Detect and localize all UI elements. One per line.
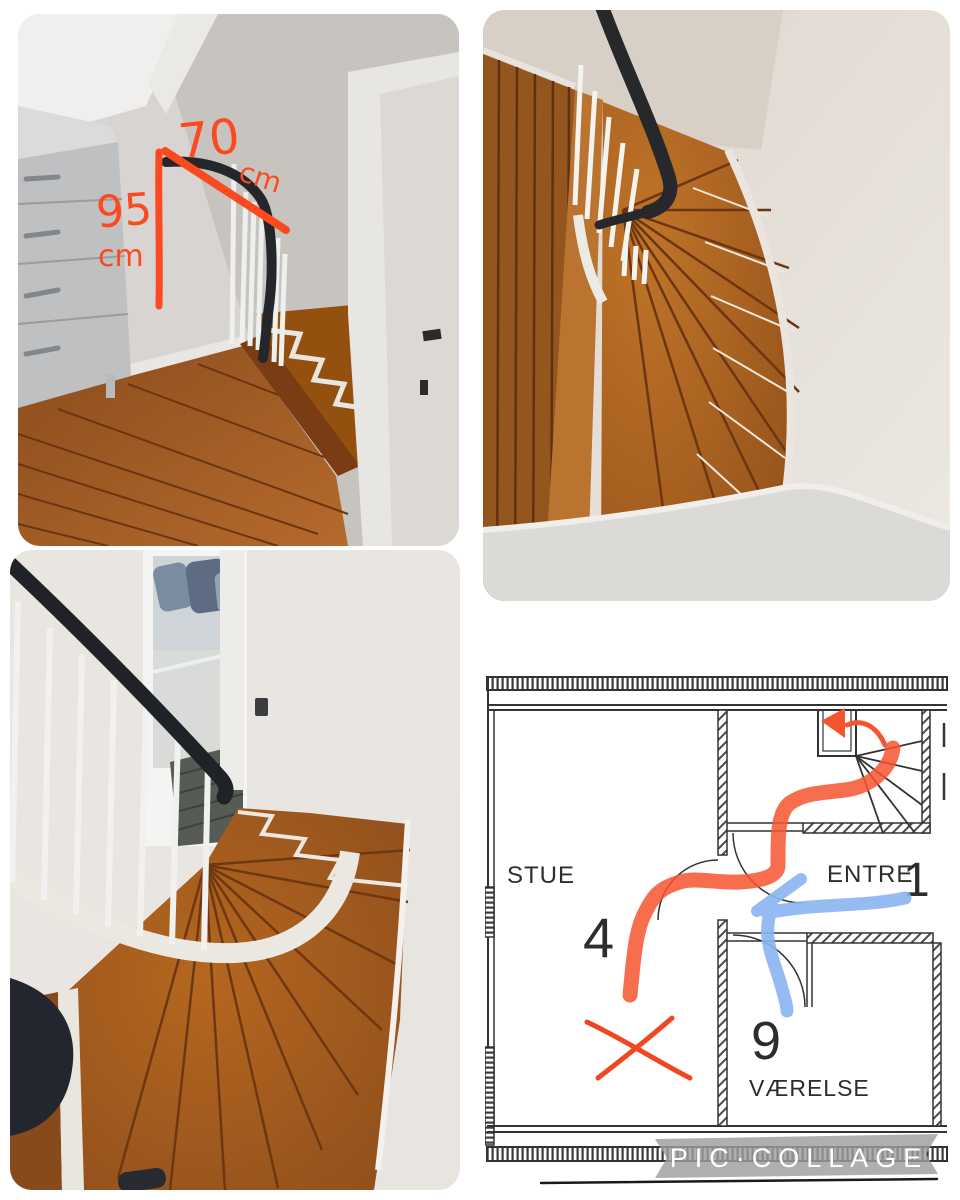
- winding-stairs-illustration: [483, 10, 950, 601]
- width-value: 70: [176, 108, 243, 170]
- door: [380, 76, 459, 546]
- living-room-number: 4: [583, 906, 615, 969]
- pic-collage-canvas: 70 cm 95 cm: [0, 0, 960, 1200]
- living-room-label: STUE: [507, 862, 575, 889]
- bedroom-number: 9: [751, 1011, 782, 1071]
- stair-landing-illustration: 70 cm 95 cm: [18, 14, 459, 546]
- height-line: [159, 152, 160, 306]
- floor-plan-drawing: STUE 4 ENTRE 1 9 VÆRELSE: [485, 655, 955, 1200]
- photo-stairs-looking-down: [483, 10, 950, 601]
- open-doorway: [143, 550, 247, 846]
- photo-stair-landing: 70 cm 95 cm: [18, 14, 459, 546]
- door-leaf: [220, 550, 244, 790]
- height-unit: cm: [98, 239, 144, 274]
- hall-label: ENTRE: [827, 861, 913, 888]
- photo-stairs-front-door: [10, 550, 460, 1190]
- bedroom-label: VÆRELSE: [749, 1075, 870, 1101]
- pic-collage-watermark: PIC·COLLAGE: [655, 1134, 938, 1178]
- stairs-door-illustration: [10, 550, 460, 1190]
- watermark-text: PIC·COLLAGE: [670, 1143, 929, 1173]
- height-value: 95: [94, 184, 153, 239]
- wall-socket: [255, 698, 268, 716]
- floor-plan-panel: STUE 4 ENTRE 1 9 VÆRELSE: [485, 655, 955, 1200]
